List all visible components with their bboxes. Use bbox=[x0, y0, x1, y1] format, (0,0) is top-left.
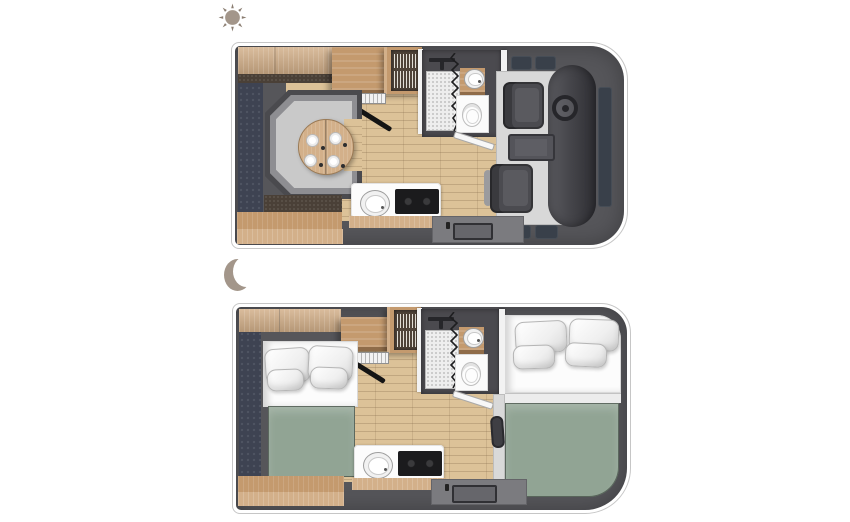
cup bbox=[343, 143, 347, 147]
center-seat bbox=[508, 134, 555, 161]
door-handle bbox=[445, 484, 449, 491]
entry-step-mat bbox=[452, 485, 497, 503]
cab-window-slat bbox=[511, 56, 532, 70]
overhead-cabinet bbox=[238, 47, 332, 74]
washbasin bbox=[464, 69, 485, 89]
passenger-seat bbox=[490, 164, 533, 213]
plate bbox=[304, 154, 317, 167]
kitchen-sink-bowl bbox=[365, 195, 386, 213]
cabinet-shadow-strip bbox=[238, 74, 332, 83]
floorplan-canvas bbox=[0, 0, 850, 522]
crockery-cabinet bbox=[384, 47, 422, 94]
sheet-fold bbox=[505, 393, 621, 403]
sun-icon bbox=[217, 2, 248, 33]
cup bbox=[321, 146, 325, 150]
kitchen-base-cabinet bbox=[237, 212, 342, 229]
roof-locker bbox=[332, 47, 384, 94]
plate bbox=[327, 155, 340, 168]
pillow bbox=[310, 366, 349, 389]
kitchen-sink bbox=[360, 190, 390, 217]
toilet bbox=[461, 362, 481, 386]
pillow bbox=[267, 368, 305, 391]
dashboard bbox=[548, 65, 596, 227]
steering-wheel bbox=[552, 95, 578, 121]
dish-rack bbox=[397, 331, 418, 347]
washbasin bbox=[463, 328, 484, 348]
shower-riser bbox=[439, 320, 443, 329]
moon-cutout bbox=[233, 256, 260, 287]
dish-rack bbox=[394, 71, 419, 88]
kitchen-worktop bbox=[264, 195, 342, 212]
day-floorplan bbox=[231, 42, 628, 249]
rear-wardrobe bbox=[238, 73, 263, 215]
door-handle bbox=[446, 222, 450, 229]
dish-rack bbox=[394, 54, 419, 68]
folded-seat bbox=[490, 416, 505, 449]
entry-step-mat bbox=[453, 223, 493, 240]
bed-foot-bench-front bbox=[238, 492, 344, 506]
overhead-cabinet bbox=[239, 309, 341, 332]
rear-wardrobe bbox=[239, 331, 261, 485]
windshield-strip bbox=[598, 87, 612, 207]
shower-riser bbox=[440, 61, 444, 70]
washbasin-bowl bbox=[468, 73, 483, 87]
counter-base-strip bbox=[349, 216, 443, 228]
kitchen-sink-bowl bbox=[368, 457, 389, 475]
night-floorplan bbox=[232, 303, 631, 514]
cab-window-slat bbox=[535, 225, 558, 239]
rear-bed-duvet bbox=[268, 406, 355, 477]
plate bbox=[329, 132, 342, 145]
pillow bbox=[513, 344, 556, 369]
driver-seat bbox=[503, 82, 544, 129]
cup bbox=[319, 163, 323, 167]
washbasin-bowl bbox=[467, 332, 482, 346]
dish-rack bbox=[397, 314, 418, 328]
pillow bbox=[564, 342, 607, 368]
cab-window-slat bbox=[535, 56, 556, 70]
kitchen-base-cabinet-front bbox=[237, 229, 343, 244]
toilet bbox=[462, 103, 482, 127]
dining-table bbox=[298, 119, 354, 175]
cooktop bbox=[398, 451, 442, 476]
bed-foot-bench bbox=[238, 476, 344, 492]
cup bbox=[341, 164, 345, 168]
moon-icon bbox=[224, 259, 254, 293]
cooktop bbox=[395, 189, 439, 214]
plate bbox=[306, 134, 319, 147]
crockery-cabinet bbox=[387, 307, 421, 353]
kitchen-sink bbox=[363, 452, 393, 479]
